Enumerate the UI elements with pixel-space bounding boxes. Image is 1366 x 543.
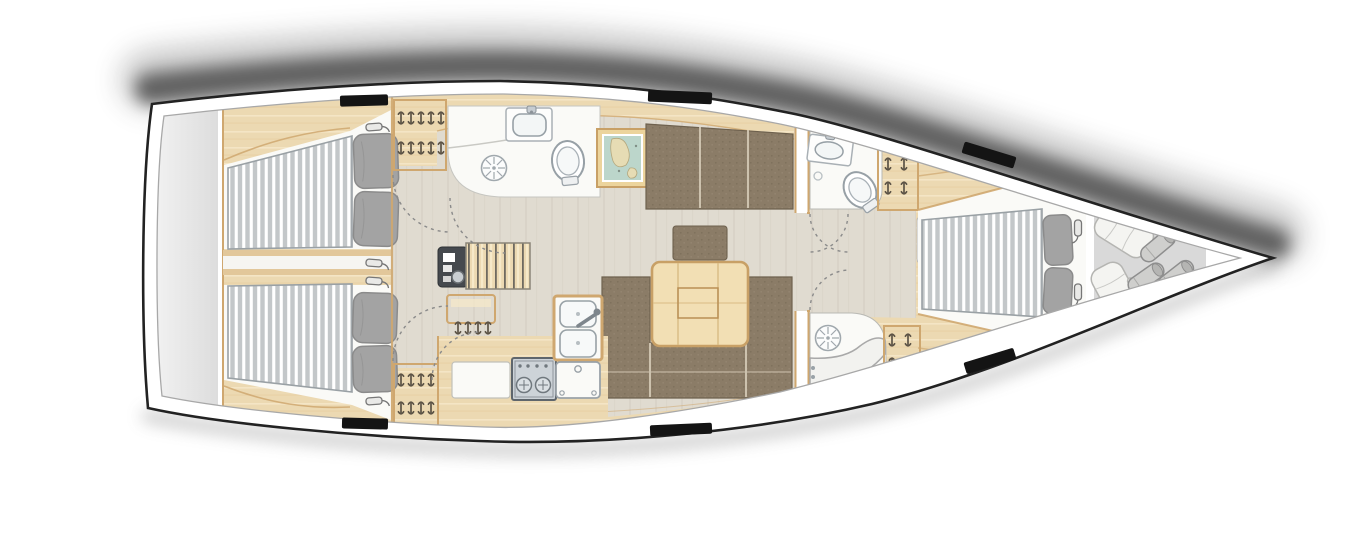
yacht-floor-plan: Sailing yacht interior deck plan, bow po… bbox=[0, 0, 1366, 543]
salon-table bbox=[652, 262, 748, 346]
settee-back-cushion bbox=[673, 226, 727, 260]
companionway-steps bbox=[466, 243, 530, 289]
deck-hatch bbox=[342, 417, 388, 429]
oven bbox=[556, 362, 600, 398]
instrument-panel bbox=[438, 247, 468, 287]
double-sink bbox=[554, 296, 602, 360]
pillow bbox=[1043, 214, 1074, 265]
chart-picture bbox=[597, 129, 648, 187]
deck-hatch bbox=[340, 94, 388, 106]
doorway bbox=[794, 213, 810, 311]
shower-drain bbox=[816, 326, 841, 351]
aft-head bbox=[448, 106, 600, 197]
washbasin bbox=[506, 106, 552, 141]
interior bbox=[140, 80, 1280, 460]
settee-top bbox=[646, 124, 793, 209]
double-bed-mattress bbox=[228, 284, 352, 392]
shower-drain bbox=[482, 156, 507, 181]
stove bbox=[512, 358, 556, 400]
forward-corridor bbox=[810, 209, 916, 318]
worktop bbox=[452, 362, 510, 398]
double-bed-mattress bbox=[922, 209, 1042, 317]
floor-plan-svg: Sailing yacht interior deck plan, bow po… bbox=[0, 0, 1366, 543]
